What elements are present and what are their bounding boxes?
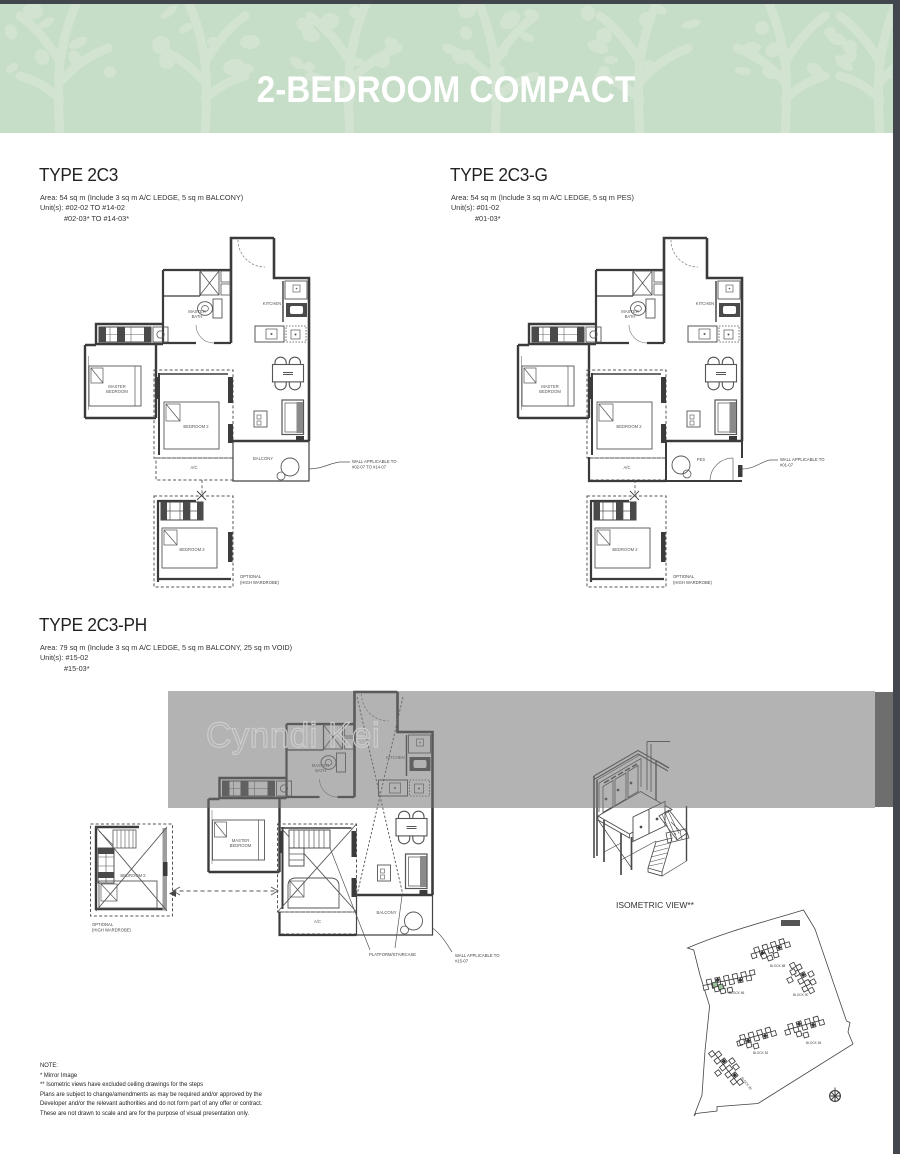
svg-text:(HIGH WARDROBE): (HIGH WARDROBE) xyxy=(240,580,280,585)
svg-text:(HIGH WARDROBE): (HIGH WARDROBE) xyxy=(92,928,132,933)
svg-text:WALL APPLICABLE TO: WALL APPLICABLE TO xyxy=(780,457,825,462)
svg-text:PES: PES xyxy=(697,457,706,462)
svg-text:BLOCK 86: BLOCK 86 xyxy=(729,991,744,995)
svg-text:BLOCK 82: BLOCK 82 xyxy=(753,1051,768,1055)
svg-text:OPTIONAL: OPTIONAL xyxy=(240,574,262,579)
svg-text:BLOCK 90: BLOCK 90 xyxy=(793,993,808,997)
svg-text:WALL APPLICABLE TO: WALL APPLICABLE TO xyxy=(352,459,397,464)
svg-text:OPTIONAL: OPTIONAL xyxy=(92,922,114,927)
svg-text:#02-07 TO #14-07: #02-07 TO #14-07 xyxy=(352,465,387,470)
svg-text:(HIGH WARDROBE): (HIGH WARDROBE) xyxy=(673,580,713,585)
svg-text:ISOMETRIC VIEW**: ISOMETRIC VIEW** xyxy=(616,900,695,910)
svg-text:BLOCK 84: BLOCK 84 xyxy=(806,1041,821,1045)
svg-text:PLATFORM/STAIRCASE: PLATFORM/STAIRCASE xyxy=(369,952,416,957)
svg-text:BLOCK 88: BLOCK 88 xyxy=(770,964,785,968)
svg-text:#15-07: #15-07 xyxy=(455,959,469,964)
svg-text:OPTIONAL: OPTIONAL xyxy=(673,574,695,579)
svg-text:WALL APPLICABLE TO: WALL APPLICABLE TO xyxy=(455,953,500,958)
svg-text:#01-07: #01-07 xyxy=(780,463,794,468)
